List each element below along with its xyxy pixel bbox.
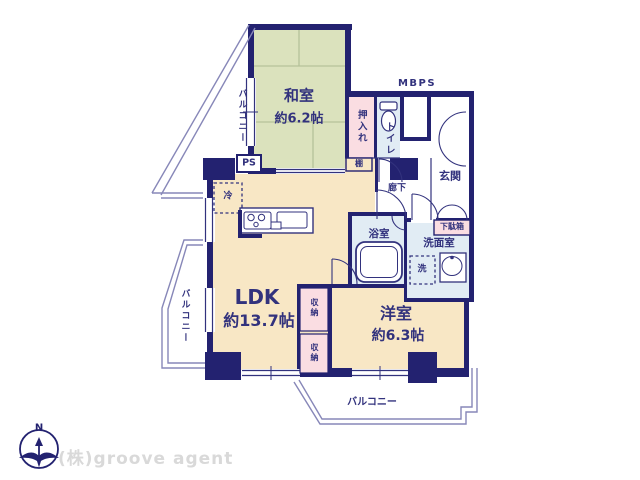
label-balcony-bottom: バルコニー xyxy=(347,398,397,408)
label-fridge: 冷 xyxy=(223,193,232,202)
label-oshiire: 押入れ xyxy=(356,110,366,145)
label-storage-lower: 収納 xyxy=(310,343,318,363)
toilet-tank xyxy=(380,102,397,110)
compass-north-label: N xyxy=(35,423,43,434)
compass-icon xyxy=(19,430,59,468)
label-genkan: 玄関 xyxy=(439,171,461,182)
label-mbps: MBPS xyxy=(398,79,436,89)
senmen-door-gap xyxy=(411,217,436,223)
label-youshitsu-size: 約6.3帖 xyxy=(372,329,425,343)
label-ps: PS xyxy=(242,158,256,168)
label-balcony-left: バルコニー xyxy=(180,289,189,344)
label-washer: 洗 xyxy=(417,266,426,275)
label-bath: 浴室 xyxy=(369,229,390,240)
label-shelf: 棚 xyxy=(355,160,363,168)
label-getabako: 下駄箱 xyxy=(440,223,464,231)
floor-plan-drawing xyxy=(0,0,640,480)
label-toilet: トイレ xyxy=(384,122,394,157)
label-senmen: 洗面室 xyxy=(423,238,455,249)
label-washitsu-name: 和室 xyxy=(284,89,314,104)
label-ldk-size: 約13.7帖 xyxy=(223,313,294,329)
genkan-closet xyxy=(431,97,469,158)
label-storage-upper: 収納 xyxy=(310,298,318,318)
floor-plan: 和室 約6.2帖 押入れ トイレ MBPS PS 棚 冷 玄関 廊下 下駄箱 浴… xyxy=(0,0,640,480)
label-rouka: 廊下 xyxy=(388,185,406,194)
label-youshitsu-name: 洋室 xyxy=(380,306,412,322)
faucet xyxy=(271,222,281,229)
label-balcony-upper-left: バルコニー xyxy=(237,89,246,144)
watermark: (株)groove agent xyxy=(58,444,233,469)
label-ldk-name: LDK xyxy=(235,287,280,307)
mbps-shaft xyxy=(404,97,427,137)
label-washitsu-size: 約6.2帖 xyxy=(274,113,323,126)
